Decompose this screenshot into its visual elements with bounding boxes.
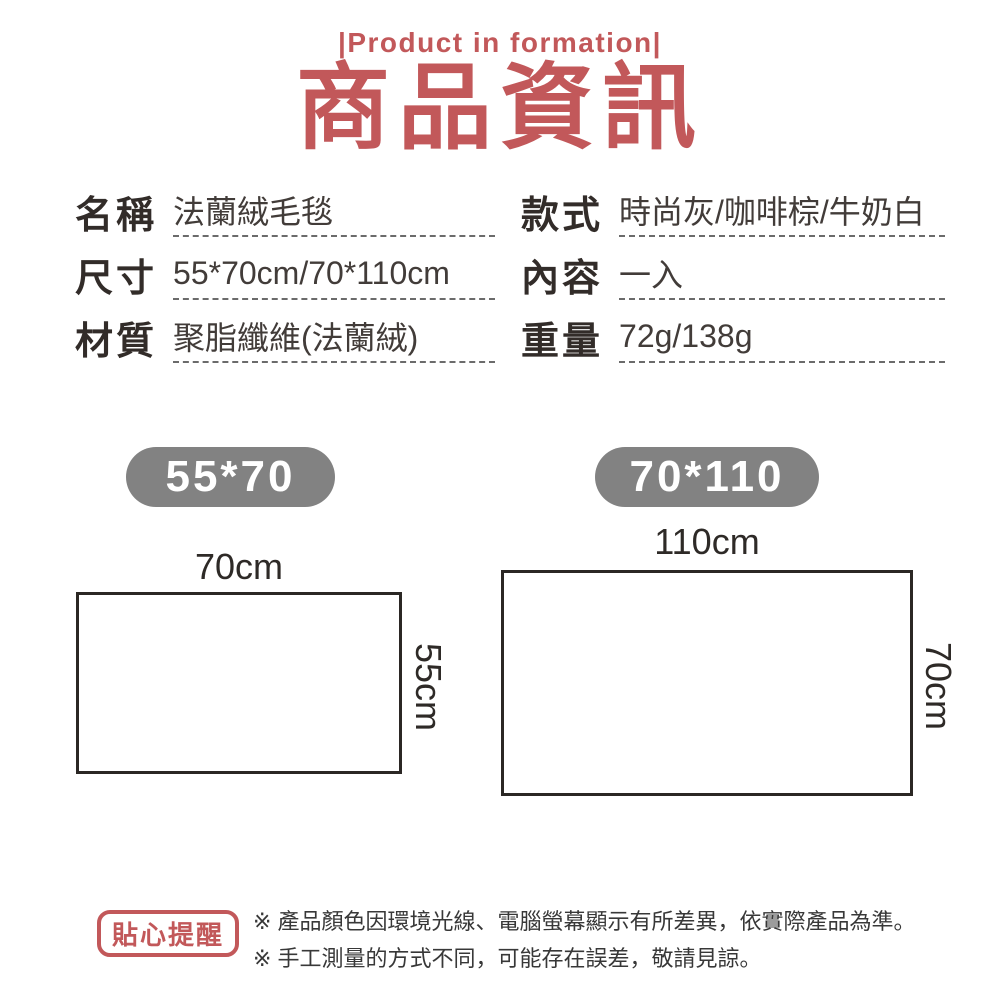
height-label-large: 70cm	[917, 626, 959, 746]
spec-value: 55*70cm/70*110cm	[173, 248, 495, 300]
spec-row-content: 內容 一入	[521, 248, 945, 300]
spec-label: 名稱	[75, 184, 157, 239]
spec-row-style: 款式 時尚灰/咖啡棕/牛奶白	[521, 185, 945, 237]
reminder-note-line: ※ 手工測量的方式不同，可能存在誤差，敬請見諒。	[253, 940, 983, 977]
spec-row-material: 材質 聚脂纖維(法蘭絨)	[75, 311, 495, 363]
spec-row-size: 尺寸 55*70cm/70*110cm	[75, 248, 495, 300]
size-rectangle-small	[76, 592, 402, 774]
product-info-page: |Product in formation| 商品資訊 名稱 法蘭絨毛毯 尺寸 …	[0, 0, 1000, 1000]
spec-label: 材質	[75, 310, 157, 365]
spec-label: 重量	[521, 310, 603, 365]
width-label-small: 70cm	[76, 546, 402, 588]
spec-label: 款式	[521, 184, 603, 239]
spec-label: 內容	[521, 247, 603, 302]
spec-value: 時尚灰/咖啡棕/牛奶白	[619, 185, 945, 237]
reminder-note-line: ※ 產品顏色因環境光線、電腦螢幕顯示有所差異，依實際產品為準。	[253, 903, 983, 940]
spec-column-right: 款式 時尚灰/咖啡棕/牛奶白 內容 一入 重量 72g/138g	[521, 185, 945, 374]
width-label-large: 110cm	[501, 521, 913, 563]
spec-value: 法蘭絨毛毯	[173, 185, 495, 237]
size-rectangle-large	[501, 570, 913, 796]
spec-column-left: 名稱 法蘭絨毛毯 尺寸 55*70cm/70*110cm 材質 聚脂纖維(法蘭絨…	[75, 185, 495, 374]
spec-value: 72g/138g	[619, 311, 945, 363]
spec-value: 聚脂纖維(法蘭絨)	[173, 311, 495, 363]
spec-value: 一入	[619, 248, 945, 300]
reminder-badge: 貼心提醒	[97, 910, 239, 957]
size-badge-70x110: 70*110	[595, 447, 819, 507]
height-label-small: 55cm	[407, 632, 449, 742]
page-title: 商品資訊	[0, 58, 1000, 158]
reminder-notes: ※ 產品顏色因環境光線、電腦螢幕顯示有所差異，依實際產品為準。 ※ 手工測量的方…	[253, 903, 983, 977]
spec-label: 尺寸	[75, 247, 157, 302]
spec-row-weight: 重量 72g/138g	[521, 311, 945, 363]
size-badge-55x70: 55*70	[126, 447, 335, 507]
spec-row-name: 名稱 法蘭絨毛毯	[75, 185, 495, 237]
spec-table: 名稱 法蘭絨毛毯 尺寸 55*70cm/70*110cm 材質 聚脂纖維(法蘭絨…	[75, 185, 965, 374]
